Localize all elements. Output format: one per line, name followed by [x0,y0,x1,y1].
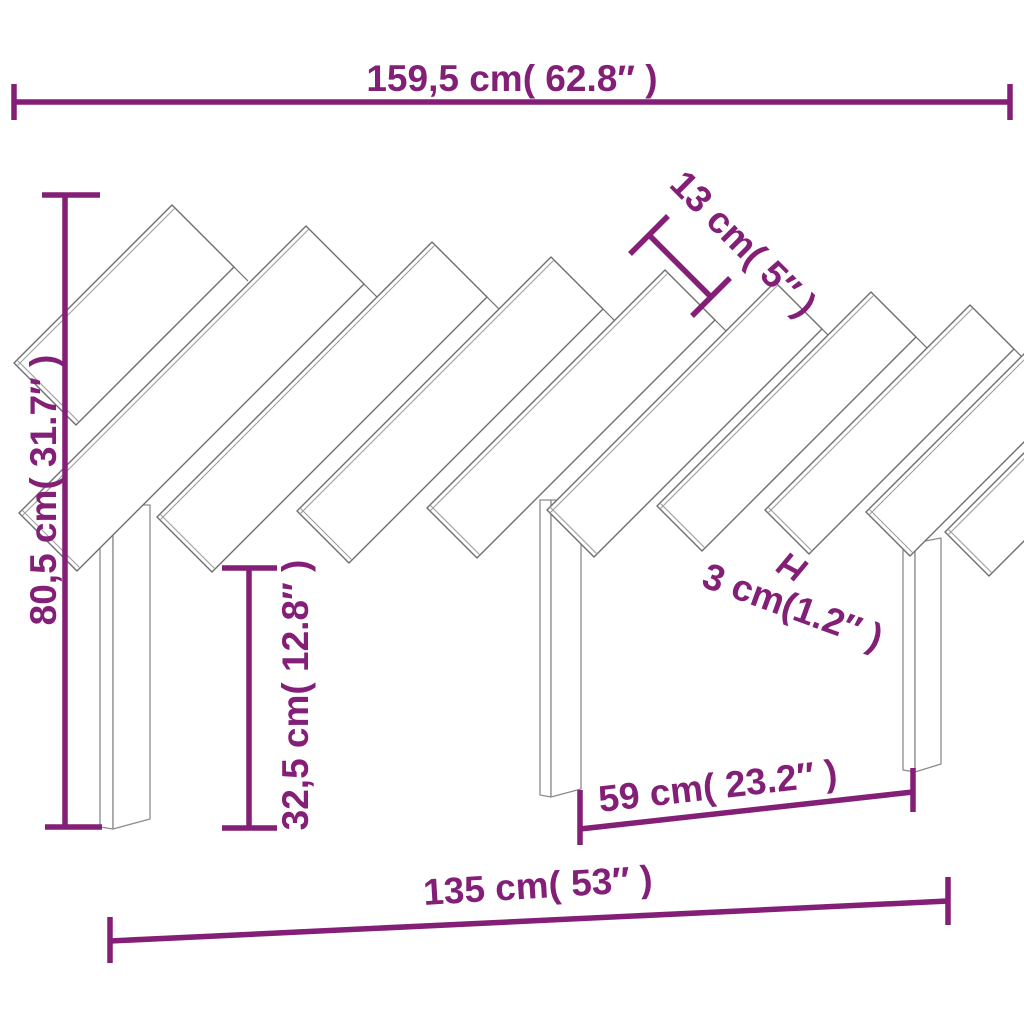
headboard-dimension-diagram: 159,5 cm( 62.8″ ) 80,5 cm( 31.7″ ) 13 cm… [0,0,1024,1024]
leg-spacing-label: 59 cm( 23.2″ ) [596,752,839,820]
right-leg-front-face [903,543,915,772]
slat-gap-dimension: 3 cm(1.2″ ) [697,554,888,658]
right-leg-side-face [915,538,941,772]
slats [14,205,1024,576]
slat-2-gap-line [364,284,378,298]
slat-1-gap-line [234,267,248,281]
base-width-dimension-line [110,901,948,941]
slat-7-gap-line [916,337,928,349]
base-width-label: 135 cm( 53″ ) [422,858,654,913]
total-width-dimension: 159,5 cm( 62.8″ ) [14,58,1010,120]
slat-gap-cross-line [784,565,799,573]
leg-height-dimension: 32,5 cm( 12.8″ ) [222,560,316,831]
base-width-dimension: 135 cm( 53″ ) [110,858,948,963]
total-height-label: 80,5 cm( 31.7″ ) [23,355,64,626]
total-width-label: 159,5 cm( 62.8″ ) [366,58,657,99]
leg-height-label: 32,5 cm( 12.8″ ) [275,560,316,831]
diagram-canvas: 159,5 cm( 62.8″ ) 80,5 cm( 31.7″ ) 13 cm… [0,0,1024,1024]
middle-leg-front-face [540,500,551,797]
left-leg-side-face [113,505,150,829]
left-leg-front-face [100,505,113,829]
leg-spacing-dimension: 59 cm( 23.2″ ) [580,752,913,845]
middle-leg-side-face [551,500,581,797]
